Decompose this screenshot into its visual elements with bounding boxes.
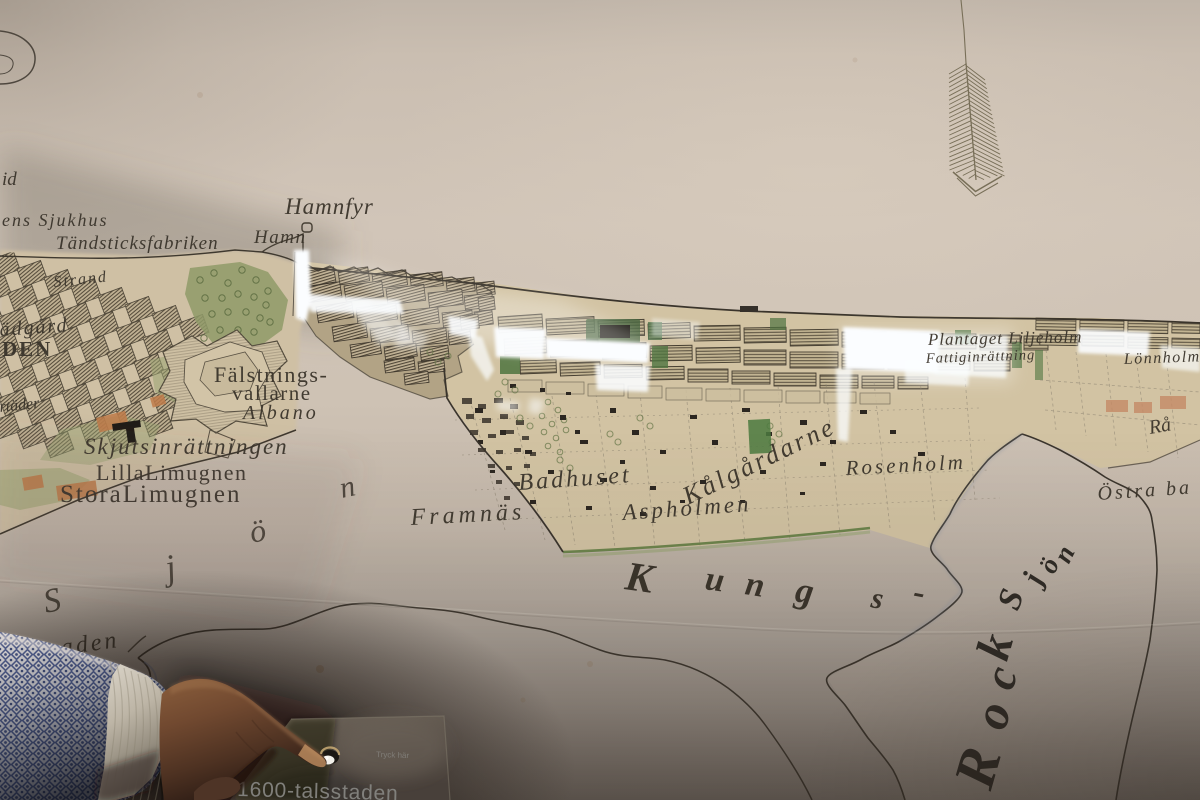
svg-text:Plantaget Liljeholm: Plantaget Liljeholm [927,327,1083,349]
svg-text:ens Sjukhus: ens Sjukhus [2,210,109,230]
svg-text:id: id [2,169,17,190]
svg-text:1600-talsstaden: 1600-talsstaden [237,778,399,800]
svg-text:Tryck här: Tryck här [376,750,410,760]
svg-text:Albano: Albano [241,402,319,424]
svg-text:Tändsticksfabriken: Tändsticksfabriken [56,233,219,254]
svg-text:Lönnholm: Lönnholm [1123,348,1200,368]
svg-text:Hamnfyr: Hamnfyr [284,194,374,219]
svg-text:Hamn: Hamn [253,227,306,248]
svg-text:DEN: DEN [2,337,52,361]
